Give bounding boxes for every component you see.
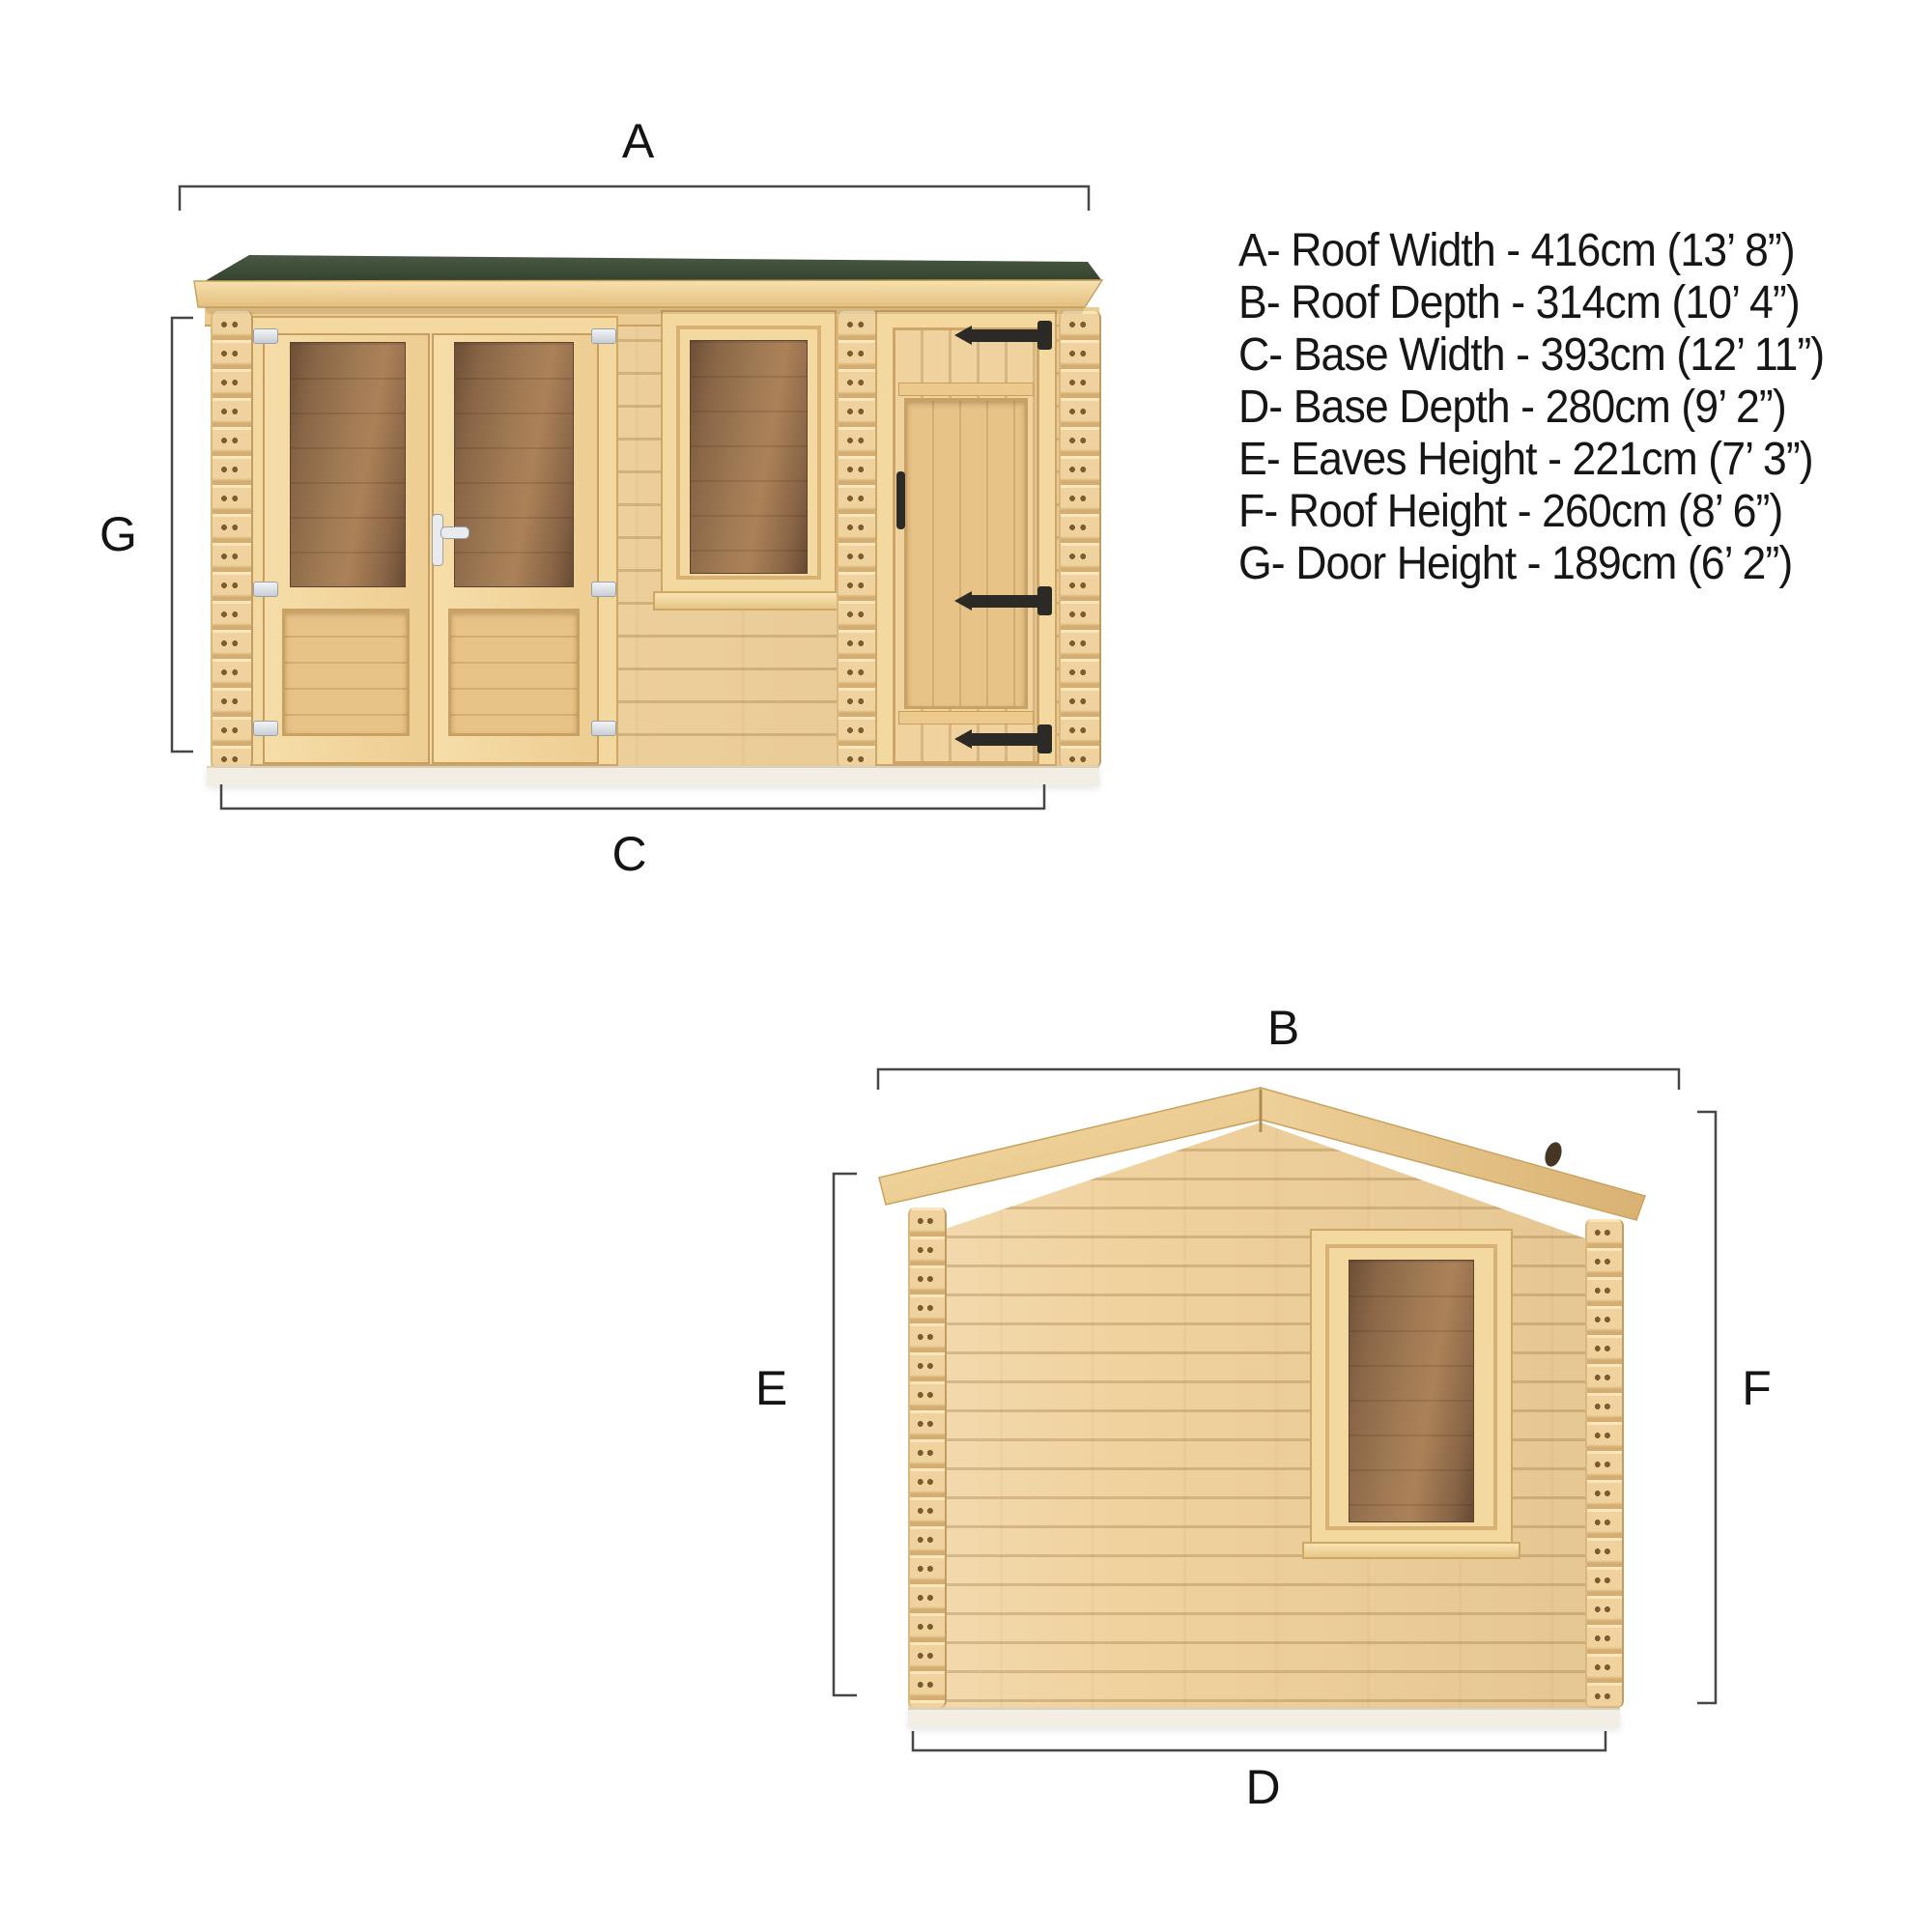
door-hinge: [253, 721, 278, 736]
door-hinge: [591, 582, 616, 597]
side-log-ends-left: [908, 1207, 947, 1708]
single-door-handle: [896, 471, 905, 529]
strap-hinge: [970, 595, 1039, 608]
side-log-ends-right: [1585, 1219, 1624, 1708]
dim-bracket-B-roof-depth: [878, 1069, 1679, 1090]
door-hinge: [591, 328, 616, 344]
legend-line: A- Roof Width - 416cm (13’ 8”): [1238, 225, 1824, 277]
dim-bracket-F-roof-height: [1697, 1112, 1716, 1703]
dim-bracket-E-eaves-height: [834, 1174, 857, 1695]
strap-hinge: [1037, 321, 1052, 350]
side-window-sill: [1302, 1542, 1520, 1559]
label-roof-width: A: [622, 113, 653, 169]
log-ends-middle: [837, 311, 879, 768]
knot-hole: [1542, 1140, 1564, 1169]
double-door-left-glass: [290, 342, 406, 587]
log-ends-right: [1059, 311, 1101, 768]
double-door-right-panel: [448, 609, 580, 736]
legend-line: G- Door Height - 189cm (6’ 2”): [1238, 538, 1824, 590]
dimension-legend: A- Roof Width - 416cm (13’ 8”) B- Roof D…: [1238, 225, 1824, 590]
label-eaves-height: E: [755, 1360, 786, 1416]
front-base: [207, 766, 1099, 785]
label-door-height: G: [99, 506, 136, 562]
strap-hinge: [970, 329, 1039, 342]
dim-bracket-D-base-depth: [913, 1731, 1605, 1750]
log-ends-left: [211, 311, 253, 768]
legend-line: F- Roof Height - 260cm (8’ 6”): [1238, 486, 1824, 538]
legend-line: C- Base Width - 393cm (12’ 11”): [1238, 329, 1824, 382]
dimension-diagram: A G C B E F D A- Roof Width - 416cm (13’…: [0, 0, 1932, 1932]
strap-hinge: [1037, 724, 1052, 753]
single-door-bottom-rail: [898, 711, 1034, 724]
side-window-glass: [1349, 1260, 1474, 1522]
front-window-glass: [690, 340, 808, 574]
label-base-depth: D: [1245, 1759, 1279, 1815]
dim-bracket-C-base-width: [221, 784, 1044, 809]
label-roof-height: F: [1742, 1360, 1771, 1416]
legend-line: B- Roof Depth - 314cm (10’ 4”): [1238, 277, 1824, 329]
side-wall-gable: [908, 1122, 1620, 1708]
double-door-left-panel: [282, 609, 410, 736]
side-base: [908, 1708, 1620, 1727]
front-window-sill: [653, 591, 844, 611]
single-door-top-rail: [898, 383, 1034, 396]
legend-line: E- Eaves Height - 221cm (7’ 3”): [1238, 434, 1824, 486]
door-handle-backplate: [432, 514, 443, 566]
door-hinge: [253, 328, 278, 344]
door-handle-lever: [440, 526, 469, 539]
single-door-panel: [904, 398, 1028, 709]
strap-hinge: [1037, 586, 1052, 615]
dim-bracket-A-roof-width: [180, 186, 1089, 211]
label-roof-depth: B: [1267, 1000, 1298, 1056]
front-roof-felt: [205, 255, 1102, 281]
legend-line: D- Base Depth - 280cm (9’ 2”): [1238, 382, 1824, 434]
double-door-right-glass: [454, 342, 574, 587]
front-roof-fascia: [194, 280, 1102, 307]
label-base-width: C: [611, 826, 645, 882]
door-hinge: [253, 582, 278, 597]
door-hinge: [591, 721, 616, 736]
dim-bracket-G-door-height: [172, 318, 193, 752]
strap-hinge: [970, 733, 1039, 746]
